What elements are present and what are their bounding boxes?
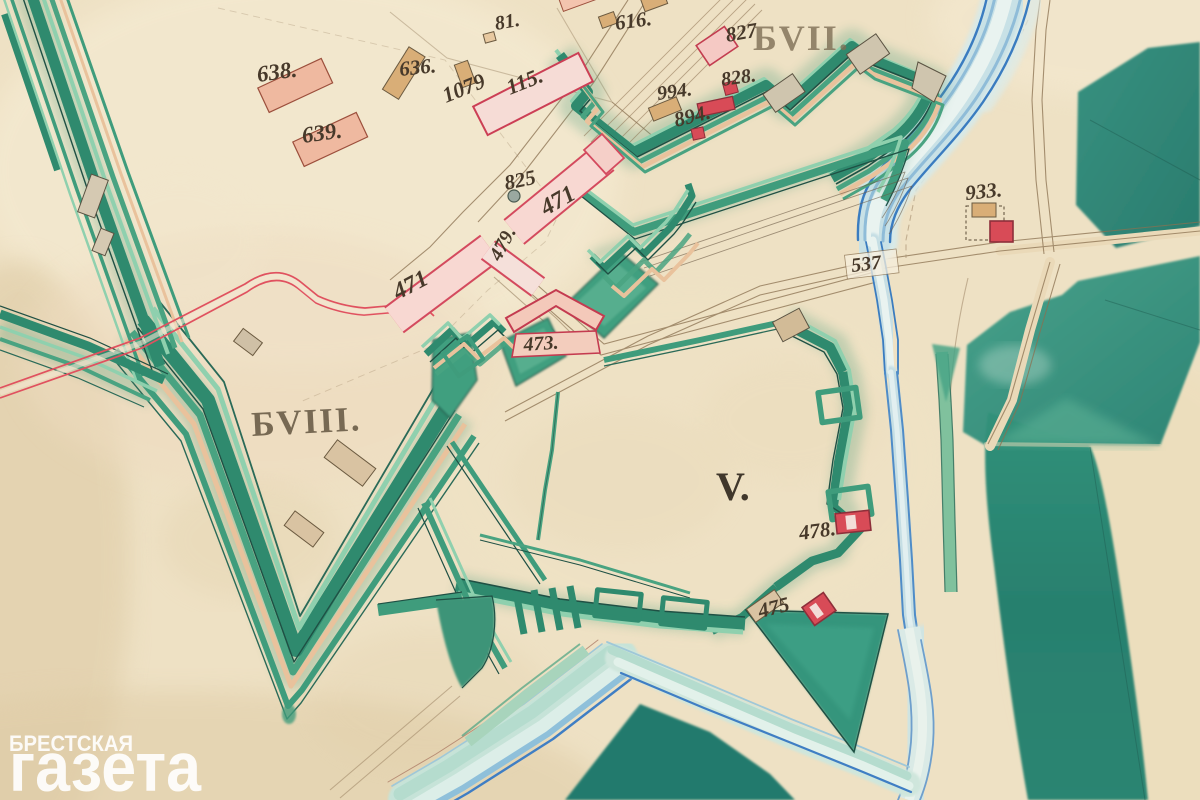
svg-text:636.: 636.: [398, 53, 437, 81]
svg-text:газета: газета: [9, 728, 202, 800]
svg-text:473.: 473.: [522, 332, 559, 356]
svg-text:БVII.: БVII.: [753, 18, 850, 58]
svg-text:V.: V.: [716, 464, 750, 509]
svg-text:616.: 616.: [613, 6, 653, 35]
svg-text:81.: 81.: [493, 9, 521, 35]
svg-text:933.: 933.: [964, 177, 1003, 205]
svg-text:БVIII.: БVIII.: [250, 399, 362, 444]
svg-text:537: 537: [850, 251, 883, 277]
